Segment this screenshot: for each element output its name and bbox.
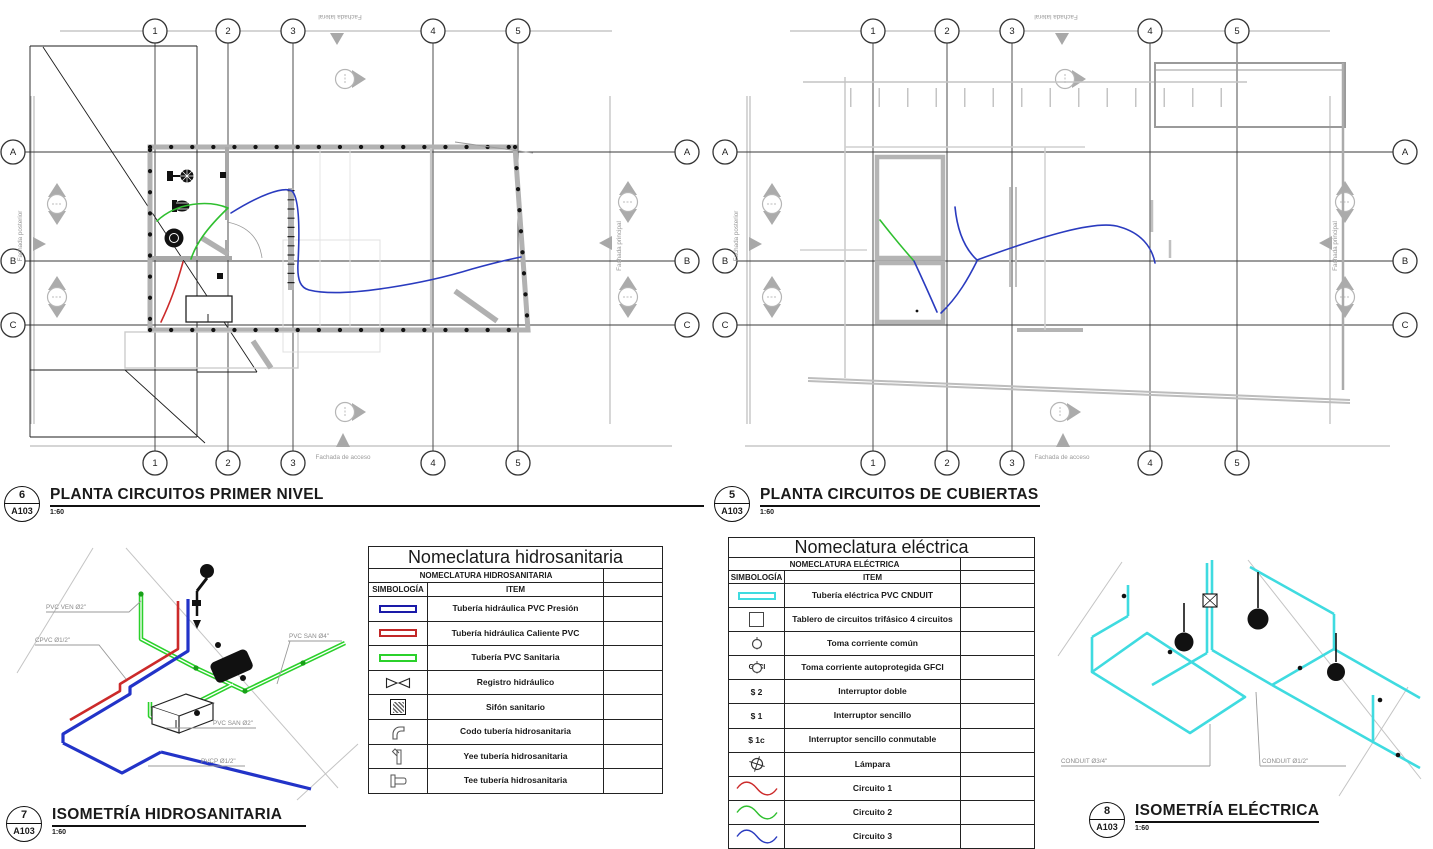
grid-bubble: 4: [1138, 19, 1162, 43]
facade-label-posterior: Fachada posterior: [17, 211, 24, 262]
view-scale: 1:60: [1135, 823, 1319, 832]
empty-cell: [961, 632, 1034, 655]
view-title: PLANTA CIRCUITOS PRIMER NIVEL: [50, 486, 704, 507]
grid-bubble: A: [675, 140, 699, 164]
circuit-2-green: [880, 220, 914, 261]
table-row: Codo tubería hidrosanitaria: [369, 720, 662, 745]
pipe-label: PVC SAN Ø2": [213, 720, 253, 727]
grid-bubble: 5: [1225, 19, 1249, 43]
view-title-block-6: 6 A103 PLANTA CIRCUITOS PRIMER NIVEL 1:6…: [4, 486, 704, 522]
empty-cell: [961, 608, 1034, 631]
facade-arrows: [749, 33, 1332, 447]
outlet-icon: [749, 636, 765, 652]
yee-fitting-icon: [391, 747, 405, 765]
svg-text:3: 3: [1009, 458, 1014, 469]
grid-bubble: A: [1393, 140, 1417, 164]
pipe-blue-icon: [379, 605, 417, 613]
svg-text:B: B: [10, 256, 16, 267]
view-number-circle: 5 A103: [714, 486, 750, 522]
table-row: Sifón sanitario: [369, 695, 662, 720]
column-header-item: ITEM: [785, 571, 961, 583]
pipe-label: PVC VEN Ø2": [46, 604, 86, 611]
svg-text:1: 1: [870, 458, 875, 469]
view-number: 5: [715, 487, 749, 504]
svg-text:1: 1: [870, 26, 875, 37]
grid-bubble: 2: [216, 19, 240, 43]
empty-cell: [961, 584, 1034, 607]
view-title-block-5: 5 A103 PLANTA CIRCUITOS DE CUBIERTAS 1:6…: [714, 486, 1040, 522]
facade-lines: [745, 31, 1390, 446]
table-row: Circuito 1: [729, 777, 1034, 801]
shower-fixture: [192, 564, 214, 629]
table-row: Tubería hidráulica Caliente PVC: [369, 622, 662, 647]
table-row: $ 1 Interruptor sencillo: [729, 704, 1034, 728]
floor-drain-icon: [390, 699, 406, 715]
svg-text:A: A: [722, 147, 729, 158]
grid-bubble: B: [1393, 249, 1417, 273]
empty-cell: [961, 680, 1034, 703]
conduit-runs: [1092, 560, 1420, 768]
table-row: Lámpara: [729, 753, 1034, 777]
empty-cell: [961, 656, 1034, 679]
grid-bubble: 3: [281, 451, 305, 475]
view-number: 7: [7, 807, 41, 824]
empty-cell: [961, 704, 1034, 727]
elevation-markers: [763, 70, 1355, 422]
switch-double-symbol: $ 2: [751, 687, 763, 697]
empty-cell: [604, 745, 662, 769]
empty-cell: [604, 622, 662, 646]
column-header-simbologia: SIMBOLOGÍA: [369, 583, 428, 596]
view-title: ISOMETRÍA ELÉCTRICA: [1135, 802, 1319, 823]
table-row: Yee tubería hidrosanitaria: [369, 745, 662, 770]
lamp-icon: [1248, 572, 1269, 630]
table-row: Circuito 3: [729, 825, 1034, 848]
circuit-1-red: [161, 262, 183, 322]
grid-bubble: 4: [1138, 451, 1162, 475]
view-number-circle: 8 A103: [1089, 802, 1125, 838]
view-title-block-7: 7 A103 ISOMETRÍA HIDROSANITARIA 1:60: [6, 806, 306, 842]
grid-bubble: 1: [143, 451, 167, 475]
view-title: ISOMETRÍA HIDROSANITARIA: [52, 806, 306, 827]
svg-text:2: 2: [944, 26, 949, 37]
grid-bubble: C: [713, 313, 737, 337]
table-title: Nomeclatura eléctrica: [729, 538, 1034, 558]
pipe-label: PVC SAN Ø4": [289, 633, 329, 640]
sheet-ref: A103: [13, 824, 35, 839]
grid-bubble: 4: [421, 19, 445, 43]
facade-label-lateral: Fachada lateral: [1034, 13, 1077, 20]
svg-text:1: 1: [152, 458, 157, 469]
pipe-green-icon: [379, 654, 417, 662]
svg-text:4: 4: [1147, 458, 1152, 469]
svg-text:5: 5: [1234, 26, 1239, 37]
conduit-cyan-icon: [738, 592, 776, 600]
switch-3way-symbol: $ 1c: [748, 735, 765, 745]
grid-bubble: C: [675, 313, 699, 337]
svg-text:C: C: [722, 320, 729, 331]
svg-text:3: 3: [1009, 26, 1014, 37]
grid-bubble: 2: [216, 451, 240, 475]
guide-lines: [17, 548, 358, 800]
breaker-panel-icon: [749, 612, 764, 627]
svg-text:2: 2: [944, 458, 949, 469]
pipe-labels: PVC VEN Ø2" CPVC Ø1/2" PVC SAN Ø4" PVC S…: [35, 604, 329, 765]
circuit-3-blue: [914, 207, 1155, 313]
view-number-circle: 6 A103: [4, 486, 40, 522]
empty-cell: [604, 695, 662, 719]
valve-bowtie-icon: [385, 677, 411, 689]
architectural-sheet: 1 2 3 4 5 1 2 3 4 5 A B C A B C Fachada …: [0, 0, 1433, 849]
view-number: 6: [5, 487, 39, 504]
facade-label-acceso: Fachada de acceso: [316, 454, 371, 461]
pipe-label: PVCP Ø1/2": [201, 758, 236, 765]
view-title-block-8: 8 A103 ISOMETRÍA ELÉCTRICA 1:60: [1089, 802, 1313, 838]
empty-cell: [961, 801, 1034, 824]
svg-text:B: B: [1402, 256, 1408, 267]
circuit-3-blue: [231, 190, 521, 293]
facade-labels: Fachada lateral Fachada de acceso Fachad…: [733, 13, 1339, 461]
pipe-red-hot: [70, 601, 178, 720]
svg-text:A: A: [1402, 147, 1409, 158]
roof-structure: [800, 63, 1350, 403]
grid-bubble: A: [713, 140, 737, 164]
facade-lines: [30, 31, 672, 446]
grid-bubble: B: [675, 249, 699, 273]
empty-cell: [961, 571, 1034, 583]
circuit-2-wave-icon: [735, 805, 779, 820]
svg-text:A: A: [684, 147, 691, 158]
pump-fixture: [209, 648, 254, 684]
view-number-circle: 7 A103: [6, 806, 42, 842]
grid-bubble: 3: [1000, 19, 1024, 43]
table-row: Tubería eléctrica PVC CNDUIT: [729, 584, 1034, 608]
table-row: GFCI Toma corriente autoprotegida GFCI: [729, 656, 1034, 680]
svg-text:B: B: [684, 256, 690, 267]
conduit-labels: CONDUIT Ø3/4" CONDUIT Ø1/2": [1061, 758, 1308, 765]
circuit-1-wave-icon: [735, 781, 779, 796]
svg-text:C: C: [1402, 320, 1409, 331]
svg-text:1: 1: [152, 26, 157, 37]
svg-text:4: 4: [430, 26, 435, 37]
grid-bubble: 3: [281, 19, 305, 43]
facade-label-principal: Fachada principal: [1332, 221, 1339, 271]
svg-text:B: B: [722, 256, 728, 267]
column-header-item: ITEM: [428, 583, 604, 596]
pendant-lamps: [1175, 572, 1346, 681]
grid-bubble: C: [1393, 313, 1417, 337]
table-row: Tubería hidráulica PVC Presión: [369, 597, 662, 622]
shower-head-icon: [200, 564, 214, 578]
grid-bubble: 1: [861, 451, 885, 475]
view-scale: 1:60: [52, 827, 306, 836]
panel-cube-icon: [1203, 594, 1217, 607]
column-header-simbologia: SIMBOLOGÍA: [729, 571, 785, 583]
grid-bubble: C: [1, 313, 25, 337]
isometric-hidrosanitaria: PVC VEN Ø2" CPVC Ø1/2" PVC SAN Ø4" PVC S…: [0, 535, 365, 807]
svg-text:C: C: [684, 320, 691, 331]
conduit-label: CONDUIT Ø3/4": [1061, 758, 1107, 765]
grid-lines: [737, 43, 1393, 451]
svg-text:2: 2: [225, 26, 230, 37]
table-subtitle: NOMECLATURA HIDROSANITARIA: [369, 569, 604, 582]
grid-bubble: A: [1, 140, 25, 164]
table-row: $ 2 Interruptor doble: [729, 680, 1034, 704]
shower-box: [186, 296, 232, 322]
table-row: Circuito 2: [729, 801, 1034, 825]
outlet-gfci-icon: [749, 660, 765, 676]
table-row: Tablero de circuitos trifásico 4 circuit…: [729, 608, 1034, 632]
switch-single-symbol: $ 1: [751, 711, 763, 721]
empty-cell: [604, 583, 662, 596]
facade-label-acceso: Fachada de acceso: [1035, 454, 1090, 461]
floor-plan-primer-nivel: 1 2 3 4 5 1 2 3 4 5 A B C A B C Fachada …: [0, 0, 710, 480]
lamp-icon: [1175, 603, 1194, 652]
table-row: $ 1c Interruptor sencillo conmutable: [729, 729, 1034, 753]
empty-cell: [961, 753, 1034, 776]
svg-text:4: 4: [1147, 26, 1152, 37]
svg-text:5: 5: [515, 458, 520, 469]
svg-text:5: 5: [1234, 458, 1239, 469]
facade-label-posterior: Fachada posterior: [733, 211, 740, 262]
table-title: Nomeclatura hidrosanitaria: [369, 547, 662, 569]
lamp-icon: [1327, 633, 1345, 681]
grid-bubble: 5: [506, 451, 530, 475]
empty-cell: [961, 777, 1034, 800]
conduit-label: CONDUIT Ø1/2": [1262, 758, 1308, 765]
empty-cell: [961, 729, 1034, 752]
grid-bubble: 2: [935, 451, 959, 475]
isometric-electrica: CONDUIT Ø3/4" CONDUIT Ø1/2": [1055, 550, 1433, 802]
empty-cell: [604, 569, 662, 582]
empty-cell: [604, 720, 662, 744]
empty-cell: [961, 558, 1034, 570]
elbow-fitting-icon: [390, 724, 406, 740]
grid-bubble: 2: [935, 19, 959, 43]
facade-label-principal: Fachada principal: [616, 221, 623, 271]
empty-cell: [604, 646, 662, 670]
view-number: 8: [1090, 803, 1124, 820]
empty-cell: [604, 769, 662, 793]
tee-fitting-icon: [388, 773, 408, 789]
water-heater-icon: [165, 229, 184, 248]
svg-text:A: A: [10, 147, 17, 158]
tank-box: [152, 694, 213, 733]
bathroom-fixtures: [165, 169, 233, 322]
lamp-symbol-icon: [748, 755, 766, 773]
sheet-ref: A103: [1096, 820, 1118, 835]
sheet-ref: A103: [11, 504, 33, 519]
elevation-markers: [48, 70, 638, 422]
view-title: PLANTA CIRCUITOS DE CUBIERTAS: [760, 486, 1040, 507]
table-nomenclatura-electrica: Nomeclatura eléctrica NOMECLATURA ELÉCTR…: [728, 537, 1035, 849]
table-row: Tee tubería hidrosanitaria: [369, 769, 662, 793]
table-row: Registro hidráulico: [369, 671, 662, 696]
svg-text:2: 2: [225, 458, 230, 469]
facade-label-lateral: Fachada lateral: [318, 13, 361, 20]
section-cut-lines: [30, 46, 257, 443]
view-scale: 1:60: [50, 507, 704, 516]
grid-bubble: 5: [506, 19, 530, 43]
view-scale: 1:60: [760, 507, 1040, 516]
empty-cell: [604, 671, 662, 695]
empty-cell: [604, 597, 662, 621]
table-nomenclatura-hidrosanitaria: Nomeclatura hidrosanitaria NOMECLATURA H…: [368, 546, 663, 794]
circuit-3-wave-icon: [735, 829, 779, 844]
svg-text:4: 4: [430, 458, 435, 469]
svg-text:3: 3: [290, 458, 295, 469]
svg-text:C: C: [10, 320, 17, 331]
svg-text:5: 5: [515, 26, 520, 37]
empty-cell: [961, 825, 1034, 848]
table-subtitle: NOMECLATURA ELÉCTRICA: [729, 558, 961, 570]
grid-bubble: 3: [1000, 451, 1024, 475]
svg-text:3: 3: [290, 26, 295, 37]
grid-bubble: 1: [861, 19, 885, 43]
pipe-red-icon: [379, 629, 417, 637]
grid-bubble: 5: [1225, 451, 1249, 475]
guide-lines: [1058, 560, 1421, 796]
table-row: Toma corriente común: [729, 632, 1034, 656]
roof-plan-cubiertas: 1 2 3 4 5 1 2 3 4 5 A B C A B C Fachada …: [710, 0, 1433, 480]
sheet-ref: A103: [721, 504, 743, 519]
pipe-label: CPVC Ø1/2": [35, 637, 70, 644]
grid-bubble: 4: [421, 451, 445, 475]
grid-bubble: 1: [143, 19, 167, 43]
door-arc: [227, 222, 262, 258]
table-row: Tubería PVC Sanitaria: [369, 646, 662, 671]
